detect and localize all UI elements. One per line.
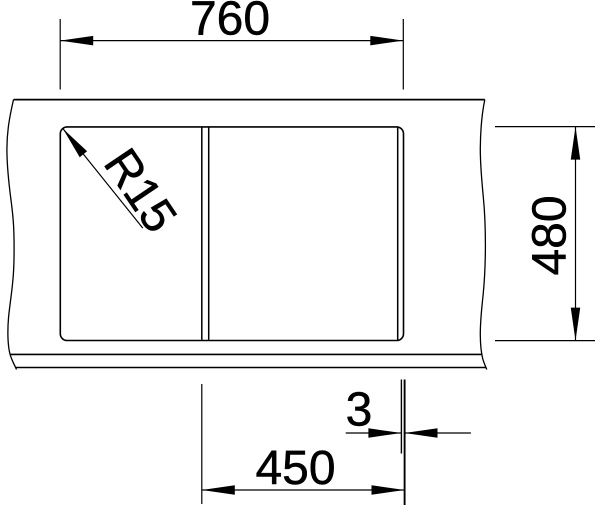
svg-text:450: 450: [255, 442, 335, 495]
svg-text:760: 760: [190, 0, 270, 45]
svg-text:3: 3: [346, 384, 373, 437]
svg-text:480: 480: [524, 195, 577, 275]
